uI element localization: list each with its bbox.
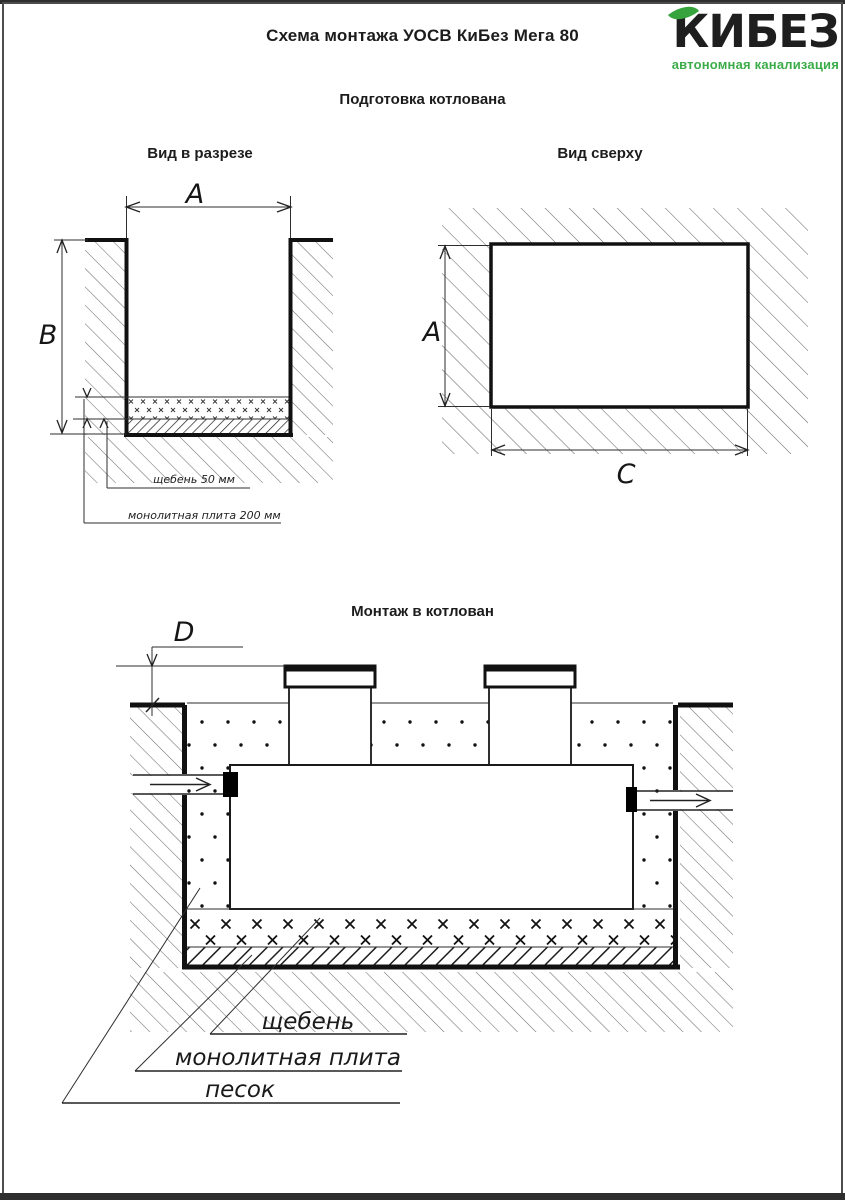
gravel-layer [129,397,289,419]
legend-slab: монолитная плита [175,1045,401,1071]
drawing-sheet: Схема монтажа УОСВ КиБез Мега 80 КИБЕЗ а… [0,0,845,1200]
dim-letter-a-top: A [421,317,441,348]
dim-letter-a: A [184,179,204,210]
dim-letter-d: D [174,617,195,648]
riser-cap-right [485,666,575,687]
riser-right [489,687,571,766]
ground-hatch-left [85,242,126,435]
top-view-diagram: A C [421,208,808,490]
outlet-connector [626,787,637,812]
riser-left [289,687,371,766]
note-slab: монолитная плита 200 мм [128,509,281,522]
riser-cap-left [285,666,375,687]
dimension-d: D [116,617,285,716]
installation-diagram: D щебень монолитная плита песок [62,617,733,1103]
sheet-bottom-edge [0,1193,845,1200]
ground-hatch-right2 [680,707,733,968]
section-view-diagram: A B щебень 50 [39,179,333,523]
dim-letter-b: B [39,320,58,351]
gravel-bed [187,909,673,947]
inlet-connector [223,772,238,797]
monolithic-slab [187,947,673,967]
note-gravel: щебень 50 мм [153,473,235,486]
legend-sand: песок [205,1077,275,1103]
dim-letter-c: C [617,459,636,490]
pit-outline-top-view [491,244,748,407]
legend-gravel: щебень [262,1009,355,1035]
dimension-a-section: A [126,179,291,238]
septic-tank-body [230,765,633,909]
slab-layer [129,419,289,435]
ground-hatch-right [291,242,333,435]
diagram-canvas: A B щебень 50 [0,0,845,1200]
